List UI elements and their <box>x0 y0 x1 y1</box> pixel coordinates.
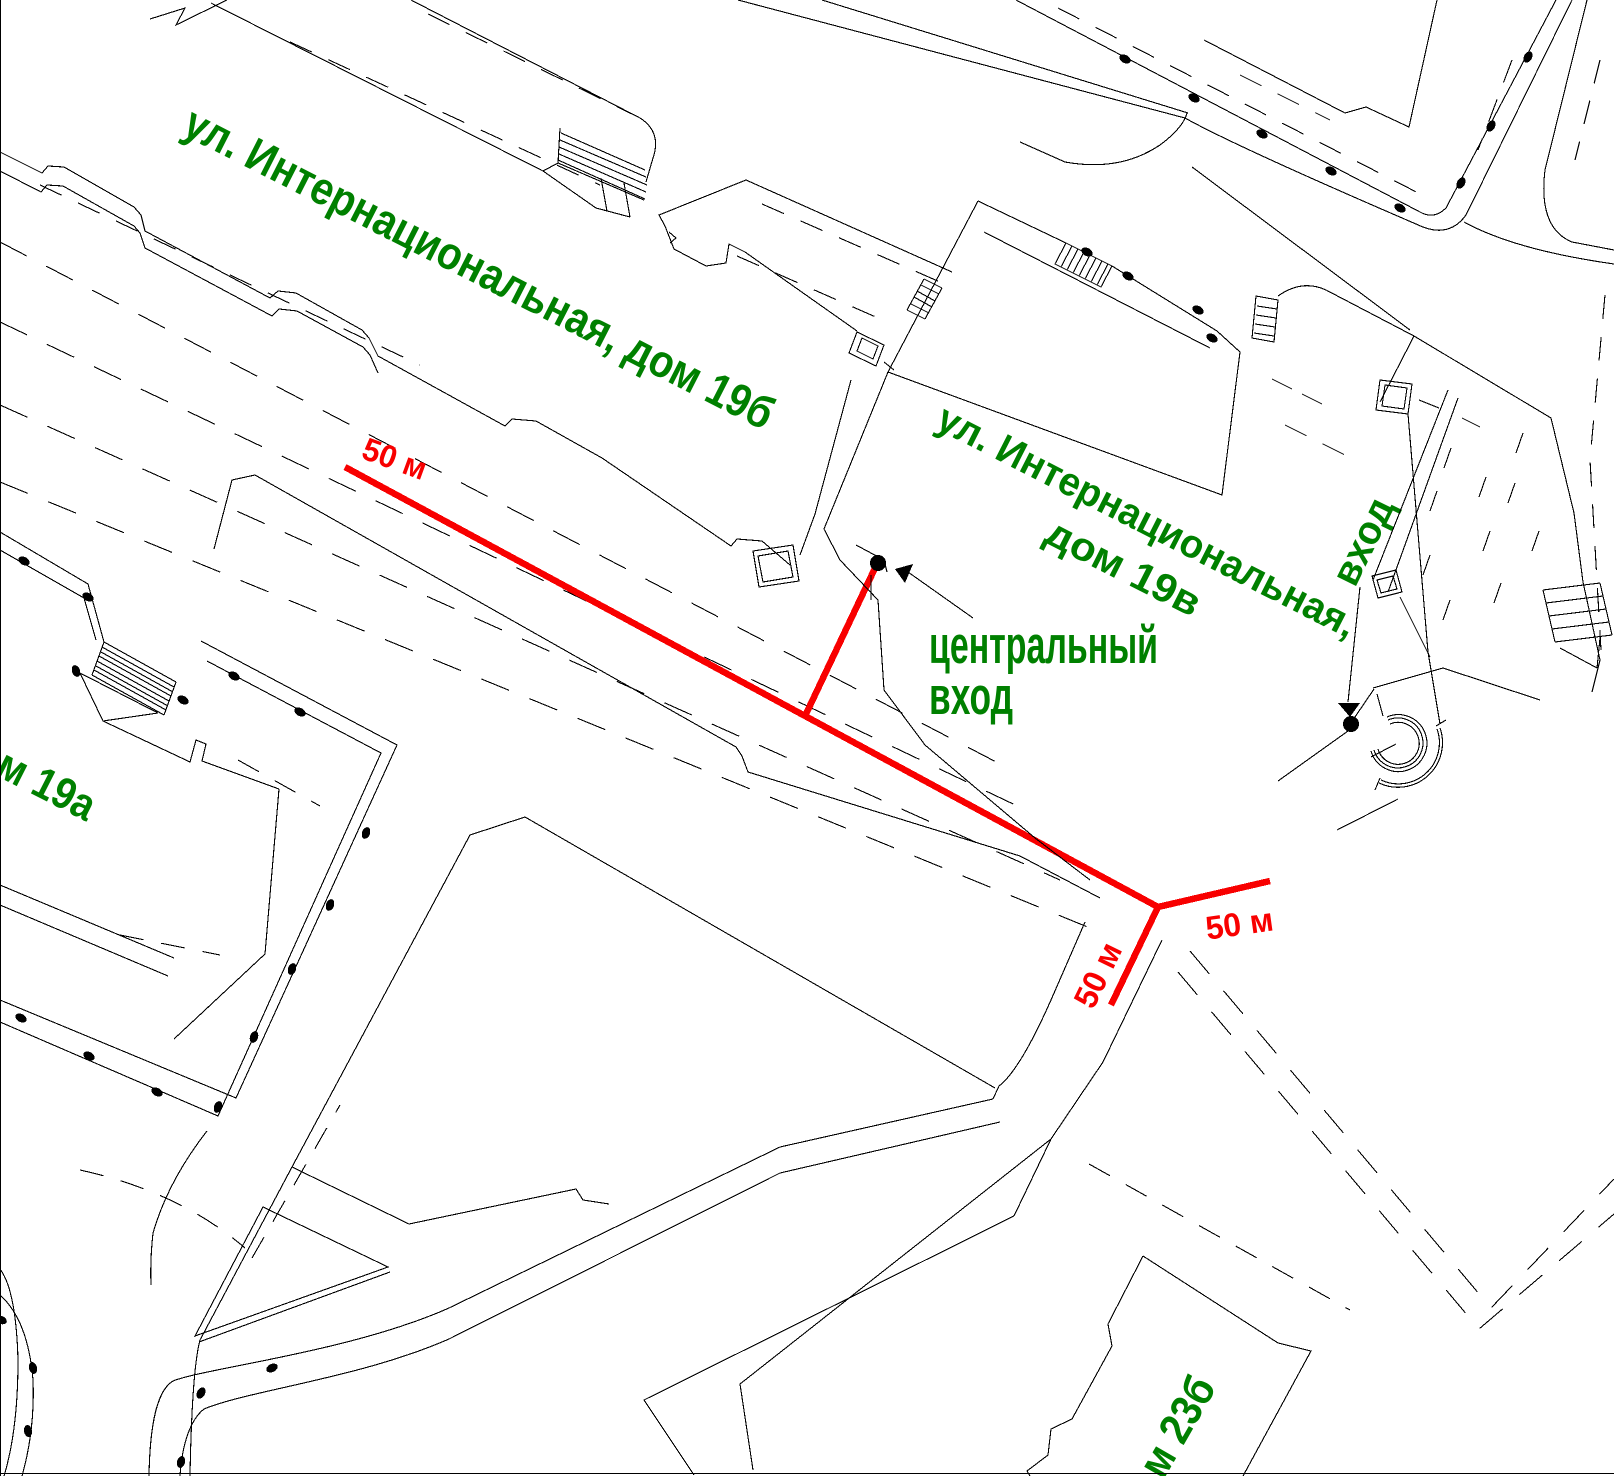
svg-text:вход: вход <box>929 667 1013 726</box>
